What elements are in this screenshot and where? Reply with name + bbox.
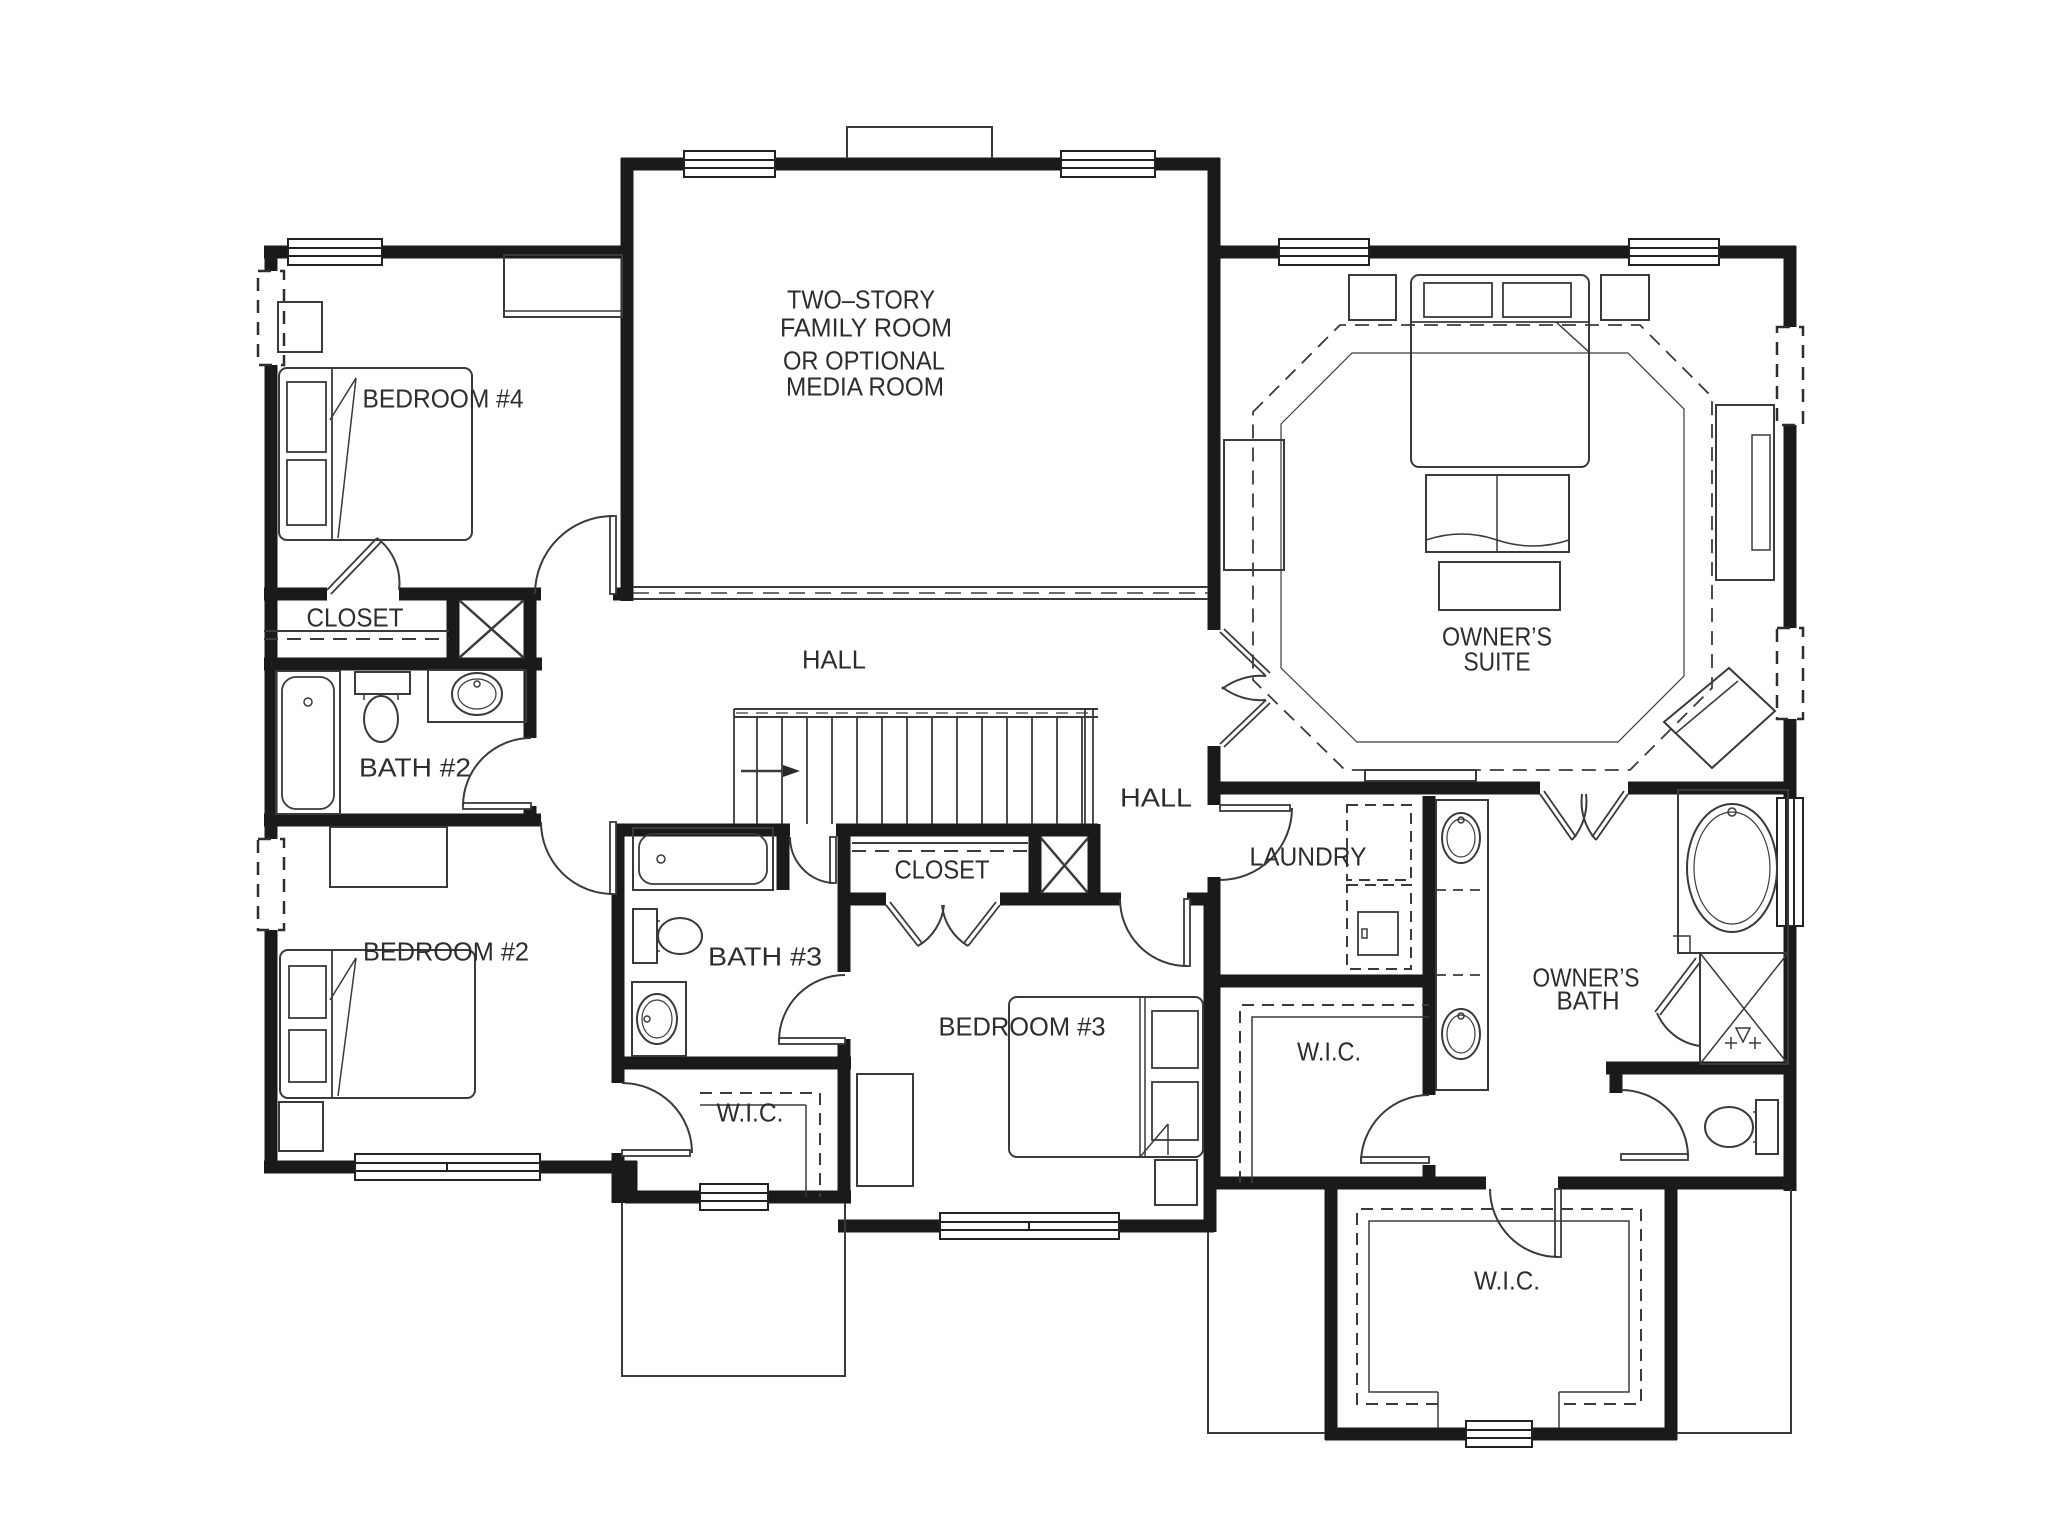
- svg-text:BEDROOM #4: BEDROOM #4: [363, 384, 524, 414]
- svg-text:BEDROOM #2: BEDROOM #2: [363, 937, 529, 967]
- svg-text:MEDIA ROOM: MEDIA ROOM: [786, 372, 944, 402]
- svg-text:CLOSET: CLOSET: [895, 855, 990, 885]
- svg-text:HALL: HALL: [1120, 783, 1192, 813]
- svg-text:W.I.C.: W.I.C.: [1297, 1037, 1361, 1067]
- svg-text:W.I.C.: W.I.C.: [717, 1098, 784, 1128]
- svg-text:CLOSET: CLOSET: [307, 603, 404, 633]
- svg-text:LAUNDRY: LAUNDRY: [1250, 842, 1367, 872]
- svg-text:BEDROOM #3: BEDROOM #3: [939, 1012, 1106, 1042]
- svg-text:BATH #3: BATH #3: [708, 942, 822, 972]
- svg-text:W.I.C.: W.I.C.: [1474, 1266, 1540, 1296]
- svg-text:SUITE: SUITE: [1464, 647, 1531, 677]
- svg-text:BATH: BATH: [1557, 986, 1620, 1016]
- svg-text:FAMILY ROOM: FAMILY ROOM: [780, 313, 952, 343]
- svg-text:BATH #2: BATH #2: [359, 753, 471, 783]
- svg-text:HALL: HALL: [802, 645, 866, 675]
- svg-text:TWO–STORY: TWO–STORY: [787, 285, 935, 315]
